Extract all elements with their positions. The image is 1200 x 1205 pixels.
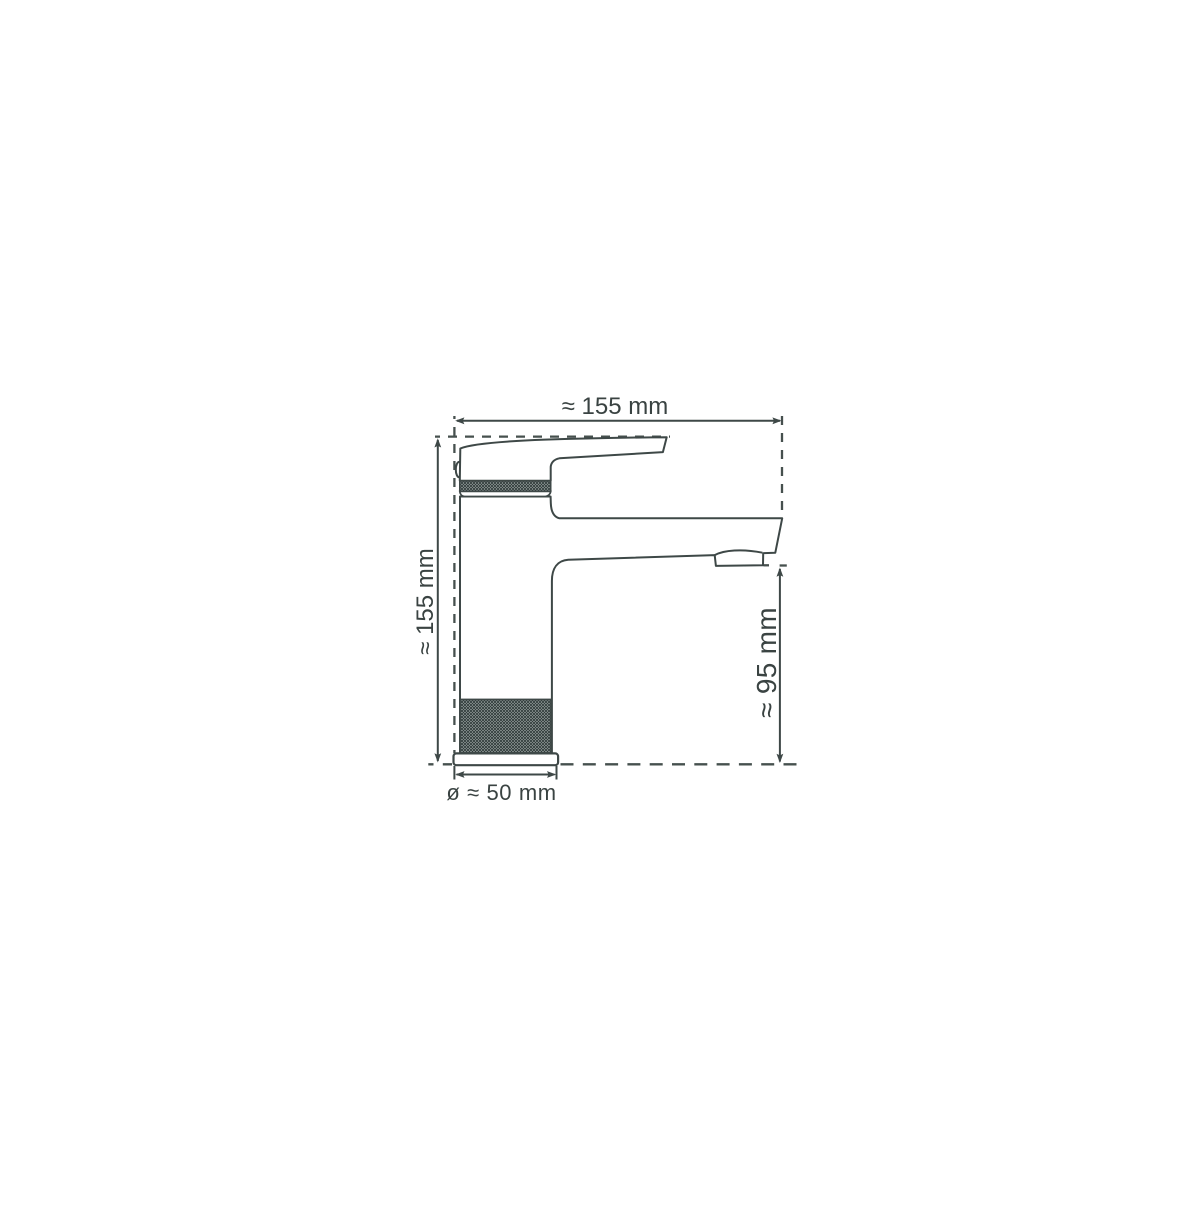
svg-text:ø ≈ 50 mm: ø ≈ 50 mm: [446, 780, 556, 805]
svg-text:≈ 155 mm: ≈ 155 mm: [412, 548, 439, 655]
svg-text:≈ 155 mm: ≈ 155 mm: [562, 393, 669, 420]
svg-text:≈ 95 mm: ≈ 95 mm: [751, 607, 782, 718]
